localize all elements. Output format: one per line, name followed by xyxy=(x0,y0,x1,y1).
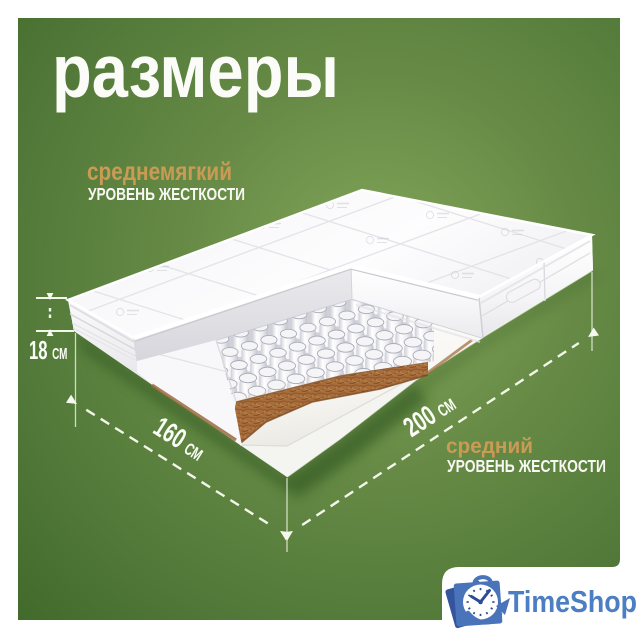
svg-text:среднемягкий: среднемягкий xyxy=(87,158,232,186)
svg-text:размеры: размеры xyxy=(52,29,339,113)
svg-text:УРОВЕНЬ ЖЕСТКОСТИ: УРОВЕНЬ ЖЕСТКОСТИ xyxy=(447,456,606,476)
svg-text:TimeShop: TimeShop xyxy=(508,584,637,619)
svg-text:средний: средний xyxy=(446,435,533,458)
svg-text:УРОВЕНЬ ЖЕСТКОСТИ: УРОВЕНЬ ЖЕСТКОСТИ xyxy=(88,184,245,204)
